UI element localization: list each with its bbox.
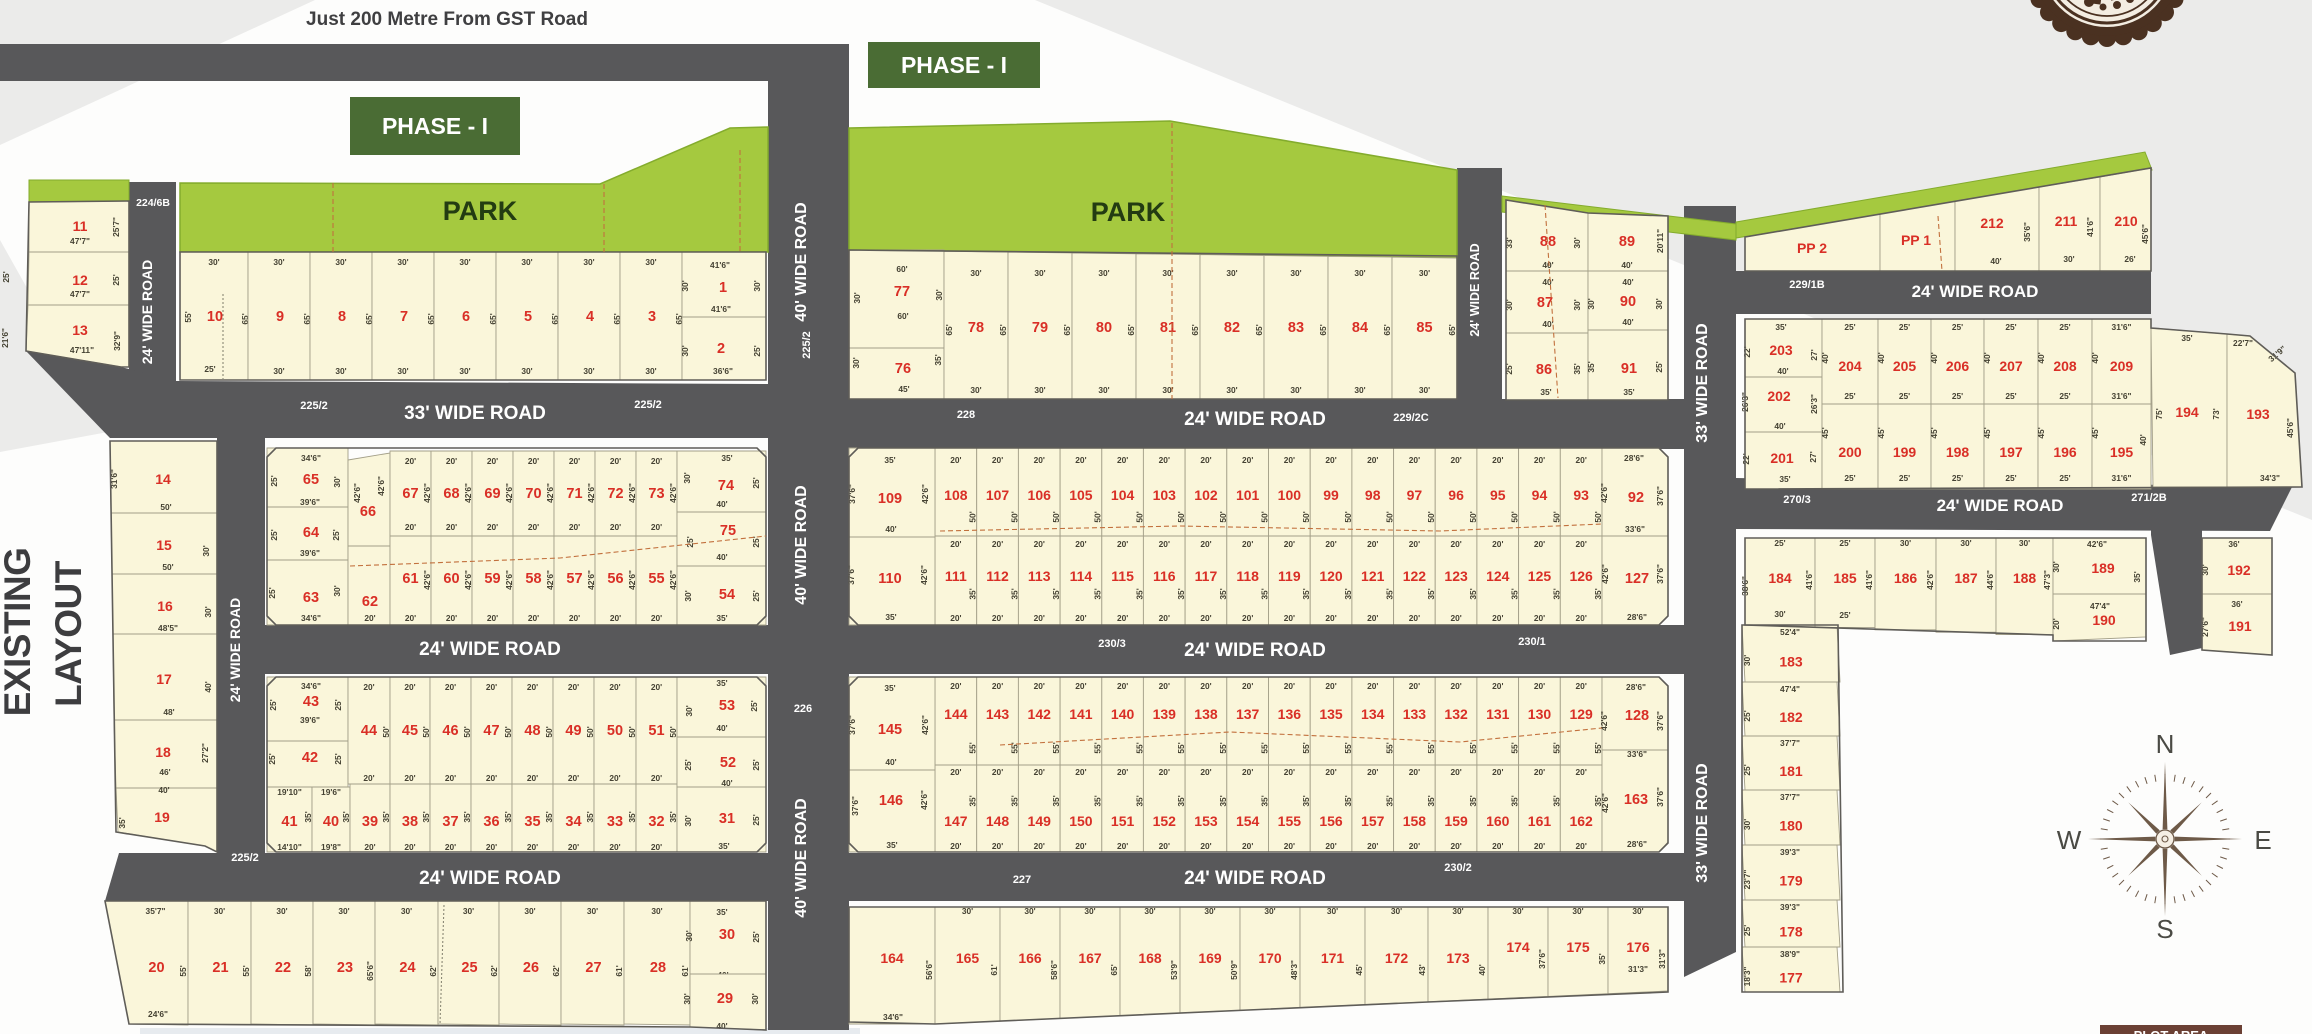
svg-text:29: 29 xyxy=(717,991,733,1007)
svg-text:20': 20' xyxy=(1450,613,1461,623)
svg-text:152: 152 xyxy=(1153,813,1177,829)
svg-text:55': 55' xyxy=(1218,742,1228,753)
svg-text:51: 51 xyxy=(648,723,664,739)
svg-text:30': 30' xyxy=(683,815,693,826)
svg-text:50'9": 50'9" xyxy=(1229,960,1239,980)
svg-text:35': 35' xyxy=(2181,333,2192,343)
svg-text:22: 22 xyxy=(275,960,291,976)
svg-text:102: 102 xyxy=(1194,487,1218,503)
svg-text:20': 20' xyxy=(1242,767,1253,777)
svg-text:65': 65' xyxy=(998,324,1008,335)
svg-text:20': 20' xyxy=(1325,455,1336,465)
svg-text:48: 48 xyxy=(524,723,540,739)
svg-text:20': 20' xyxy=(1534,767,1545,777)
svg-text:20': 20' xyxy=(610,522,621,532)
svg-text:20': 20' xyxy=(1200,613,1211,623)
svg-text:150: 150 xyxy=(1069,813,1093,829)
svg-text:24' WIDE ROAD: 24' WIDE ROAD xyxy=(1184,640,1326,661)
svg-text:20': 20' xyxy=(1492,767,1503,777)
svg-text:20': 20' xyxy=(528,613,539,623)
svg-text:35': 35' xyxy=(718,841,729,851)
svg-text:2: 2 xyxy=(717,341,725,357)
svg-text:31: 31 xyxy=(719,811,735,827)
svg-text:20': 20' xyxy=(1242,455,1253,465)
svg-text:25': 25' xyxy=(267,587,277,598)
svg-text:35': 35' xyxy=(1623,387,1634,397)
svg-text:40' WIDE ROAD: 40' WIDE ROAD xyxy=(793,798,810,917)
svg-text:25': 25' xyxy=(333,699,343,710)
svg-text:30': 30' xyxy=(750,993,760,1004)
svg-text:43: 43 xyxy=(303,694,319,710)
svg-text:21: 21 xyxy=(212,960,228,976)
svg-text:20': 20' xyxy=(1034,613,1045,623)
svg-text:50': 50' xyxy=(1093,511,1103,522)
svg-text:127: 127 xyxy=(1625,571,1649,587)
svg-text:20': 20' xyxy=(527,773,538,783)
svg-text:6: 6 xyxy=(462,309,470,325)
svg-text:54: 54 xyxy=(719,587,735,603)
svg-text:124: 124 xyxy=(1486,568,1510,584)
svg-text:45': 45' xyxy=(2090,427,2100,438)
svg-text:20': 20' xyxy=(1159,613,1170,623)
svg-text:209: 209 xyxy=(2110,358,2134,374)
svg-text:30': 30' xyxy=(970,385,981,395)
svg-text:40': 40' xyxy=(721,778,732,788)
svg-text:45': 45' xyxy=(898,384,909,394)
svg-text:50': 50' xyxy=(585,726,595,737)
svg-text:40': 40' xyxy=(2090,352,2100,363)
svg-text:35': 35' xyxy=(1597,953,1607,964)
svg-text:30': 30' xyxy=(1290,385,1301,395)
svg-text:168: 168 xyxy=(1138,950,1162,966)
svg-text:30': 30' xyxy=(1960,538,1971,548)
svg-text:96: 96 xyxy=(1448,487,1464,503)
svg-text:55': 55' xyxy=(183,311,193,322)
svg-text:225/2: 225/2 xyxy=(801,331,813,359)
svg-text:30': 30' xyxy=(1586,298,1596,309)
svg-text:25': 25' xyxy=(269,529,279,540)
svg-text:35': 35' xyxy=(1093,588,1103,599)
svg-text:20': 20' xyxy=(405,613,416,623)
svg-text:20': 20' xyxy=(1075,539,1086,549)
svg-text:182: 182 xyxy=(1779,709,1803,725)
svg-text:132: 132 xyxy=(1444,706,1468,722)
svg-text:33' WIDE ROAD: 33' WIDE ROAD xyxy=(1694,323,1711,442)
svg-text:35': 35' xyxy=(1510,588,1520,599)
svg-text:40': 40' xyxy=(203,681,213,692)
svg-text:116: 116 xyxy=(1153,568,1176,584)
svg-text:20': 20' xyxy=(1576,539,1587,549)
svg-text:20': 20' xyxy=(992,613,1003,623)
svg-text:118: 118 xyxy=(1236,568,1259,584)
svg-text:225/2: 225/2 xyxy=(634,399,662,411)
svg-text:35': 35' xyxy=(1260,588,1270,599)
svg-text:44'6": 44'6" xyxy=(1985,570,1995,590)
svg-text:7: 7 xyxy=(400,309,408,325)
svg-text:20': 20' xyxy=(1075,767,1086,777)
svg-text:20': 20' xyxy=(609,842,620,852)
svg-text:47'4": 47'4" xyxy=(2090,601,2110,611)
svg-text:105: 105 xyxy=(1069,487,1093,503)
svg-text:205: 205 xyxy=(1893,358,1917,374)
svg-text:42'6": 42'6" xyxy=(627,483,637,503)
svg-text:12: 12 xyxy=(72,272,88,288)
svg-text:20': 20' xyxy=(486,842,497,852)
svg-text:39'3": 39'3" xyxy=(1780,902,1800,912)
svg-text:136: 136 xyxy=(1278,706,1302,722)
svg-text:104: 104 xyxy=(1111,487,1135,503)
svg-text:72: 72 xyxy=(607,486,623,502)
svg-text:212: 212 xyxy=(1980,215,2004,231)
svg-text:20': 20' xyxy=(992,539,1003,549)
svg-text:95: 95 xyxy=(1490,487,1506,503)
svg-text:50': 50' xyxy=(544,726,554,737)
svg-text:20': 20' xyxy=(1284,681,1295,691)
svg-text:20': 20' xyxy=(950,681,961,691)
svg-text:20': 20' xyxy=(446,522,457,532)
svg-text:20': 20' xyxy=(1117,455,1128,465)
svg-text:35': 35' xyxy=(968,795,978,806)
svg-text:42'6": 42'6" xyxy=(463,570,473,590)
svg-text:30': 30' xyxy=(1572,237,1582,248)
svg-text:20': 20' xyxy=(1576,681,1587,691)
svg-text:30': 30' xyxy=(684,930,694,941)
svg-text:20': 20' xyxy=(651,613,662,623)
svg-text:35': 35' xyxy=(1586,361,1596,372)
svg-text:67: 67 xyxy=(402,486,418,502)
svg-text:126: 126 xyxy=(1569,568,1593,584)
svg-text:EXISTING: EXISTING xyxy=(0,548,38,717)
svg-text:40': 40' xyxy=(1990,256,2001,266)
svg-text:25': 25' xyxy=(333,753,343,764)
svg-text:31'6": 31'6" xyxy=(2112,391,2132,401)
svg-text:55': 55' xyxy=(1510,742,1520,753)
svg-text:20': 20' xyxy=(1159,767,1170,777)
svg-text:3: 3 xyxy=(648,309,656,325)
svg-text:106: 106 xyxy=(1028,487,1052,503)
svg-text:224/6B: 224/6B xyxy=(136,197,170,209)
svg-text:103: 103 xyxy=(1153,487,1177,503)
svg-text:20': 20' xyxy=(1117,767,1128,777)
svg-text:50': 50' xyxy=(1343,511,1353,522)
svg-text:50': 50' xyxy=(162,562,173,572)
svg-text:20': 20' xyxy=(364,613,375,623)
svg-text:50': 50' xyxy=(421,726,431,737)
svg-text:25': 25' xyxy=(1654,361,1664,372)
svg-text:35': 35' xyxy=(933,354,943,365)
svg-text:35': 35' xyxy=(1343,795,1353,806)
svg-text:170: 170 xyxy=(1258,950,1282,966)
svg-text:20': 20' xyxy=(405,456,416,466)
svg-text:56: 56 xyxy=(607,571,623,587)
svg-text:161: 161 xyxy=(1528,813,1552,829)
svg-text:20': 20' xyxy=(1284,613,1295,623)
svg-text:89: 89 xyxy=(1619,234,1635,250)
svg-text:20: 20 xyxy=(148,960,164,976)
svg-text:20': 20' xyxy=(364,842,375,852)
svg-text:30': 30' xyxy=(684,705,694,716)
svg-text:50': 50' xyxy=(1218,511,1228,522)
svg-text:38: 38 xyxy=(402,814,418,830)
svg-text:184: 184 xyxy=(1768,570,1792,586)
svg-text:20': 20' xyxy=(651,842,662,852)
svg-text:20': 20' xyxy=(1409,539,1420,549)
svg-text:40': 40' xyxy=(1929,352,1939,363)
svg-text:20': 20' xyxy=(1492,681,1503,691)
svg-text:50': 50' xyxy=(1510,511,1520,522)
svg-text:40': 40' xyxy=(716,499,727,509)
svg-text:S: S xyxy=(2156,914,2173,944)
svg-text:40': 40' xyxy=(1477,964,1487,975)
svg-text:172: 172 xyxy=(1385,950,1409,966)
svg-text:PHASE - I: PHASE - I xyxy=(901,52,1007,78)
svg-text:84: 84 xyxy=(1352,320,1368,336)
svg-text:25': 25' xyxy=(1952,322,1963,332)
svg-text:125: 125 xyxy=(1528,568,1552,584)
svg-text:45'6": 45'6" xyxy=(2285,418,2295,438)
svg-text:20': 20' xyxy=(1117,539,1128,549)
svg-text:20': 20' xyxy=(404,682,415,692)
svg-text:35'6": 35'6" xyxy=(2022,222,2032,242)
svg-text:30': 30' xyxy=(273,257,284,267)
svg-text:20': 20' xyxy=(1450,539,1461,549)
svg-text:55': 55' xyxy=(1260,742,1270,753)
svg-text:58: 58 xyxy=(525,571,541,587)
svg-text:20': 20' xyxy=(1450,767,1461,777)
svg-text:30': 30' xyxy=(463,906,474,916)
svg-text:30': 30' xyxy=(201,545,211,556)
svg-text:121: 121 xyxy=(1361,568,1385,584)
svg-text:35': 35' xyxy=(1260,795,1270,806)
svg-text:25': 25' xyxy=(2059,322,2070,332)
svg-text:24' WIDE ROAD: 24' WIDE ROAD xyxy=(1184,409,1326,430)
svg-text:35': 35' xyxy=(721,453,732,463)
svg-text:PP 2: PP 2 xyxy=(1797,240,1827,256)
svg-text:40': 40' xyxy=(2138,434,2148,445)
svg-text:94: 94 xyxy=(1532,487,1548,503)
svg-text:87: 87 xyxy=(1537,295,1553,311)
svg-text:42'6": 42'6" xyxy=(920,484,930,504)
svg-text:28'6": 28'6" xyxy=(1626,682,1646,692)
svg-text:98: 98 xyxy=(1365,487,1381,503)
svg-text:60: 60 xyxy=(443,571,459,587)
svg-text:74: 74 xyxy=(718,478,734,494)
svg-text:20': 20' xyxy=(992,767,1003,777)
svg-text:20': 20' xyxy=(1075,841,1086,851)
svg-text:14'10": 14'10" xyxy=(277,842,302,852)
svg-text:187: 187 xyxy=(1954,570,1978,586)
svg-text:20': 20' xyxy=(1409,841,1420,851)
svg-text:50': 50' xyxy=(968,511,978,522)
svg-text:20': 20' xyxy=(1576,613,1587,623)
svg-text:20': 20' xyxy=(1159,681,1170,691)
svg-text:22': 22' xyxy=(1742,346,1752,357)
svg-text:147: 147 xyxy=(944,813,968,829)
svg-text:101: 101 xyxy=(1236,487,1260,503)
svg-text:146: 146 xyxy=(879,793,903,809)
svg-text:201: 201 xyxy=(1770,450,1794,466)
svg-text:42'6": 42'6" xyxy=(422,483,432,503)
svg-text:203: 203 xyxy=(1769,342,1793,358)
svg-text:47'11": 47'11" xyxy=(70,345,94,355)
svg-text:20': 20' xyxy=(1034,841,1045,851)
svg-text:109: 109 xyxy=(878,491,902,507)
svg-text:35': 35' xyxy=(1593,588,1603,599)
svg-text:20': 20' xyxy=(1367,767,1378,777)
svg-text:37: 37 xyxy=(442,814,458,830)
svg-text:20': 20' xyxy=(1534,539,1545,549)
svg-text:26': 26' xyxy=(2124,254,2135,264)
svg-text:50': 50' xyxy=(627,726,637,737)
svg-text:61': 61' xyxy=(614,965,624,976)
svg-text:24' WIDE ROAD: 24' WIDE ROAD xyxy=(227,598,243,702)
svg-text:PHASE - I: PHASE - I xyxy=(382,113,488,139)
svg-text:30': 30' xyxy=(683,590,693,601)
svg-text:30': 30' xyxy=(2051,561,2061,572)
svg-text:35': 35' xyxy=(1572,363,1582,374)
svg-text:30': 30' xyxy=(1774,609,1785,619)
svg-text:270/3: 270/3 xyxy=(1783,494,1811,506)
svg-text:30': 30' xyxy=(521,257,532,267)
svg-text:20': 20' xyxy=(1534,681,1545,691)
svg-text:55': 55' xyxy=(1301,742,1311,753)
svg-text:53: 53 xyxy=(719,698,735,714)
svg-text:41'6": 41'6" xyxy=(1804,570,1814,590)
svg-text:20': 20' xyxy=(569,613,580,623)
svg-text:159: 159 xyxy=(1444,813,1468,829)
svg-text:45': 45' xyxy=(1820,427,1830,438)
svg-text:46': 46' xyxy=(159,767,170,777)
svg-text:138: 138 xyxy=(1194,706,1218,722)
svg-text:131: 131 xyxy=(1486,706,1510,722)
svg-text:30': 30' xyxy=(680,280,690,291)
svg-text:128: 128 xyxy=(1625,708,1649,724)
svg-text:40: 40 xyxy=(323,814,339,830)
svg-text:50': 50' xyxy=(503,726,513,737)
svg-text:28'6": 28'6" xyxy=(1627,612,1647,622)
svg-text:41'6": 41'6" xyxy=(1864,570,1874,590)
svg-text:78: 78 xyxy=(968,320,984,336)
svg-text:225/2: 225/2 xyxy=(231,852,259,864)
svg-text:20': 20' xyxy=(1200,539,1211,549)
svg-text:20': 20' xyxy=(528,456,539,466)
svg-text:PARK: PARK xyxy=(443,196,518,226)
svg-text:20': 20' xyxy=(445,773,456,783)
svg-text:112: 112 xyxy=(986,568,1009,584)
svg-text:25': 25' xyxy=(331,529,341,540)
svg-text:30': 30' xyxy=(1034,268,1045,278)
svg-text:20': 20' xyxy=(487,613,498,623)
svg-text:40': 40' xyxy=(1876,352,1886,363)
svg-text:30': 30' xyxy=(397,257,408,267)
svg-text:35': 35' xyxy=(1468,588,1478,599)
svg-text:44: 44 xyxy=(361,723,377,739)
svg-text:58'6": 58'6" xyxy=(1049,960,1059,980)
svg-text:20': 20' xyxy=(528,522,539,532)
svg-text:40': 40' xyxy=(716,723,727,733)
svg-text:26'3": 26'3" xyxy=(1809,394,1819,414)
svg-text:141: 141 xyxy=(1069,706,1093,722)
svg-text:35: 35 xyxy=(524,814,540,830)
svg-text:20': 20' xyxy=(1325,841,1336,851)
svg-text:37'6": 37'6" xyxy=(1655,787,1665,807)
svg-text:37'6": 37'6" xyxy=(1655,486,1665,506)
svg-text:35': 35' xyxy=(544,811,554,822)
svg-text:50': 50' xyxy=(160,502,171,512)
svg-text:42'6": 42'6" xyxy=(668,483,678,503)
svg-text:PP 1: PP 1 xyxy=(1901,232,1931,248)
svg-text:1: 1 xyxy=(719,280,727,296)
svg-text:163: 163 xyxy=(1624,792,1648,808)
svg-text:8: 8 xyxy=(338,309,346,325)
svg-text:35': 35' xyxy=(421,811,431,822)
svg-text:42'6": 42'6" xyxy=(919,565,929,585)
svg-text:42'6": 42'6" xyxy=(504,483,514,503)
svg-text:42'6": 42'6" xyxy=(463,483,473,503)
svg-text:55': 55' xyxy=(1093,742,1103,753)
svg-text:57: 57 xyxy=(566,571,582,587)
svg-text:55': 55' xyxy=(178,965,188,976)
svg-text:40': 40' xyxy=(1820,352,1830,363)
svg-text:30': 30' xyxy=(332,585,342,596)
svg-text:30': 30' xyxy=(934,289,944,300)
svg-text:149: 149 xyxy=(1028,813,1052,829)
svg-text:20': 20' xyxy=(1284,767,1295,777)
svg-text:30': 30' xyxy=(273,366,284,376)
svg-text:30': 30' xyxy=(208,257,219,267)
svg-text:11: 11 xyxy=(73,218,88,234)
svg-text:48'5": 48'5" xyxy=(158,623,178,633)
svg-text:20': 20' xyxy=(1284,539,1295,549)
svg-text:34'6": 34'6" xyxy=(883,1012,903,1022)
svg-text:176: 176 xyxy=(1626,939,1650,955)
svg-text:37'6": 37'6" xyxy=(850,796,860,816)
svg-text:193: 193 xyxy=(2246,406,2270,422)
svg-text:24' WIDE ROAD: 24' WIDE ROAD xyxy=(419,868,561,889)
svg-text:20': 20' xyxy=(1492,455,1503,465)
svg-text:39'6": 39'6" xyxy=(300,497,320,507)
svg-text:65': 65' xyxy=(1382,324,1392,335)
svg-text:20': 20' xyxy=(486,682,497,692)
svg-text:40': 40' xyxy=(1542,260,1553,270)
svg-text:35': 35' xyxy=(886,840,897,850)
svg-text:20': 20' xyxy=(1200,681,1211,691)
svg-text:30': 30' xyxy=(1354,385,1365,395)
svg-text:64: 64 xyxy=(303,525,319,541)
svg-text:117: 117 xyxy=(1195,568,1218,584)
svg-text:155: 155 xyxy=(1278,813,1302,829)
svg-text:185: 185 xyxy=(1833,570,1857,586)
svg-text:207: 207 xyxy=(1999,358,2023,374)
svg-text:60': 60' xyxy=(896,264,907,274)
svg-text:55': 55' xyxy=(1551,742,1561,753)
svg-text:37'6": 37'6" xyxy=(1655,564,1665,584)
svg-text:47'7": 47'7" xyxy=(70,289,90,299)
svg-text:40': 40' xyxy=(1621,260,1632,270)
svg-text:20': 20' xyxy=(446,613,457,623)
svg-text:47: 47 xyxy=(483,723,499,739)
svg-text:50': 50' xyxy=(1260,511,1270,522)
svg-text:20': 20' xyxy=(1242,539,1253,549)
svg-text:157: 157 xyxy=(1361,813,1385,829)
svg-text:60': 60' xyxy=(897,311,908,321)
svg-text:25': 25' xyxy=(2059,473,2070,483)
svg-text:20': 20' xyxy=(1534,455,1545,465)
svg-text:24' WIDE ROAD: 24' WIDE ROAD xyxy=(419,639,561,660)
svg-text:164: 164 xyxy=(880,950,904,966)
svg-text:35': 35' xyxy=(1779,474,1790,484)
svg-text:20': 20' xyxy=(950,539,961,549)
